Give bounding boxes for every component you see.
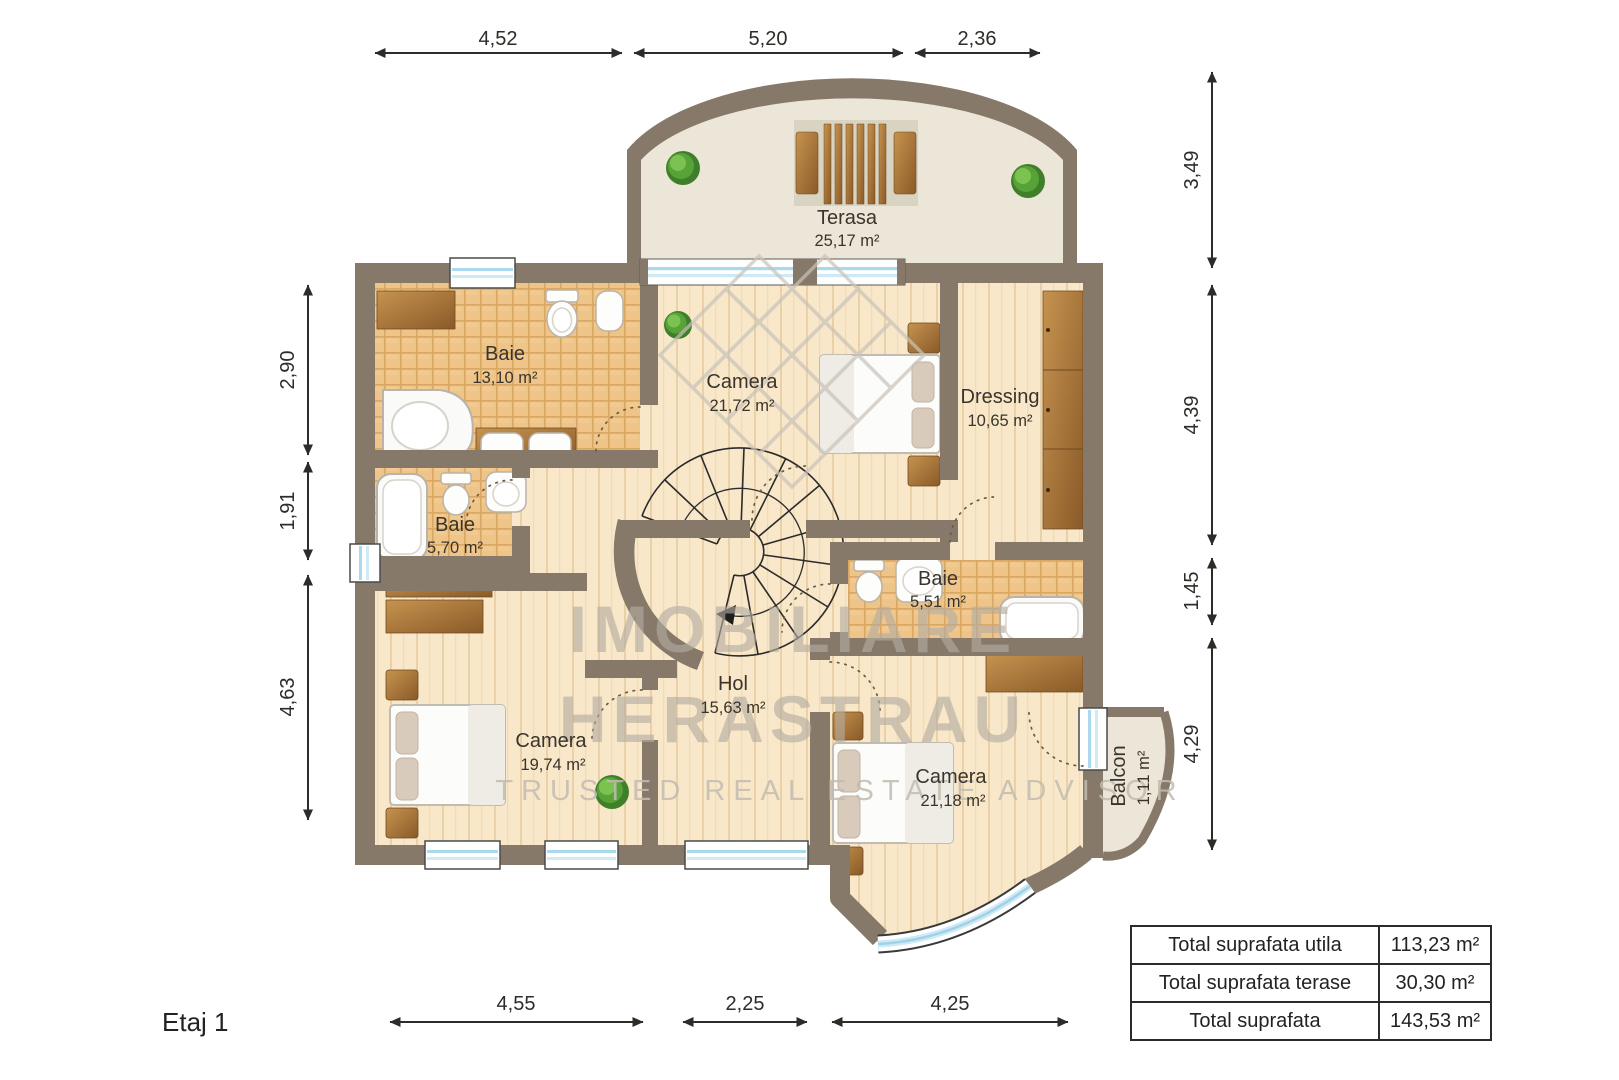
svg-text:10,65 m²: 10,65 m² bbox=[967, 412, 1033, 430]
balcony-door bbox=[1079, 708, 1107, 770]
svg-text:1,91: 1,91 bbox=[277, 492, 299, 531]
room-label-baie-51: Baie 5,51 m² bbox=[910, 568, 966, 611]
terrace-glazing bbox=[640, 259, 905, 285]
svg-text:Baie: Baie bbox=[485, 343, 525, 365]
svg-text:Camera: Camera bbox=[515, 730, 587, 752]
toilet bbox=[546, 290, 578, 337]
svg-text:4,25: 4,25 bbox=[931, 993, 970, 1015]
plant bbox=[666, 151, 700, 185]
svg-text:5,20: 5,20 bbox=[749, 28, 788, 50]
plant bbox=[1011, 164, 1045, 198]
bidet bbox=[596, 291, 623, 331]
window bbox=[425, 841, 500, 869]
svg-text:Camera: Camera bbox=[706, 371, 778, 393]
terrace-deck bbox=[794, 120, 918, 206]
svg-text:Balcon: Balcon bbox=[1108, 745, 1130, 806]
svg-text:2,36: 2,36 bbox=[958, 28, 997, 50]
window bbox=[350, 544, 380, 582]
room-label-baie-mica: Baie 5,70 m² bbox=[427, 514, 483, 557]
table-row-label: Total suprafata terase bbox=[1132, 965, 1380, 1001]
svg-text:Camera: Camera bbox=[915, 766, 987, 788]
room-label-terasa: Terasa 25,17 m² bbox=[814, 207, 880, 250]
svg-text:Baie: Baie bbox=[435, 514, 475, 536]
svg-text:21,72 m²: 21,72 m² bbox=[709, 397, 775, 415]
floor-plan: IMOBILIARE HERASTRAU TRUSTED REAL ESTATE… bbox=[0, 0, 1619, 1080]
svg-text:4,52: 4,52 bbox=[479, 28, 518, 50]
floor-label: Etaj 1 bbox=[162, 1007, 229, 1037]
table-row-value: 143,53 m² bbox=[1380, 1003, 1490, 1039]
svg-text:4,39: 4,39 bbox=[1181, 396, 1203, 435]
svg-text:3,49: 3,49 bbox=[1181, 151, 1203, 190]
svg-text:Dressing: Dressing bbox=[961, 386, 1040, 408]
table-row-label: Total suprafata bbox=[1132, 1003, 1380, 1039]
svg-text:1,11 m²: 1,11 m² bbox=[1135, 750, 1153, 805]
svg-text:4,29: 4,29 bbox=[1181, 725, 1203, 764]
svg-text:4,63: 4,63 bbox=[277, 678, 299, 717]
table-row: Total suprafata utila 113,23 m² bbox=[1132, 927, 1490, 963]
bath-cabinet bbox=[377, 291, 455, 329]
table-row: Total suprafata terase 30,30 m² bbox=[1132, 963, 1490, 1001]
wardrobe bbox=[386, 600, 483, 633]
table-row-value: 30,30 m² bbox=[1380, 965, 1490, 1001]
wardrobe bbox=[1043, 291, 1083, 529]
table-row-label: Total suprafata utila bbox=[1132, 927, 1380, 963]
svg-text:Terasa: Terasa bbox=[817, 207, 878, 229]
watermark-tagline: TRUSTED REAL ESTATE ADVISOR bbox=[495, 775, 1184, 807]
svg-text:5,70 m²: 5,70 m² bbox=[427, 539, 483, 557]
svg-text:Baie: Baie bbox=[918, 568, 958, 590]
svg-text:Hol: Hol bbox=[718, 673, 748, 695]
svg-text:13,10 m²: 13,10 m² bbox=[472, 369, 538, 387]
svg-text:4,55: 4,55 bbox=[497, 993, 536, 1015]
svg-text:5,51 m²: 5,51 m² bbox=[910, 593, 966, 611]
table-row: Total suprafata 143,53 m² bbox=[1132, 1001, 1490, 1039]
table-row-value: 113,23 m² bbox=[1380, 927, 1490, 963]
floor-plan-page: IMOBILIARE HERASTRAU TRUSTED REAL ESTATE… bbox=[0, 0, 1619, 1080]
svg-text:21,18 m²: 21,18 m² bbox=[920, 792, 986, 810]
corner-bathtub-basin bbox=[392, 402, 448, 450]
watermark-line2: HERASTRAU bbox=[559, 682, 1027, 756]
window bbox=[685, 841, 808, 869]
window bbox=[450, 258, 515, 288]
svg-text:25,17 m²: 25,17 m² bbox=[814, 232, 880, 250]
svg-text:19,74 m²: 19,74 m² bbox=[520, 756, 586, 774]
svg-text:1,45: 1,45 bbox=[1181, 572, 1203, 611]
svg-text:2,25: 2,25 bbox=[726, 993, 765, 1015]
area-summary-table: Total suprafata utila 113,23 m² Total su… bbox=[1130, 925, 1492, 1041]
svg-text:15,63 m²: 15,63 m² bbox=[700, 699, 766, 717]
svg-text:2,90: 2,90 bbox=[277, 351, 299, 390]
window bbox=[545, 841, 618, 869]
toilet bbox=[441, 473, 471, 515]
